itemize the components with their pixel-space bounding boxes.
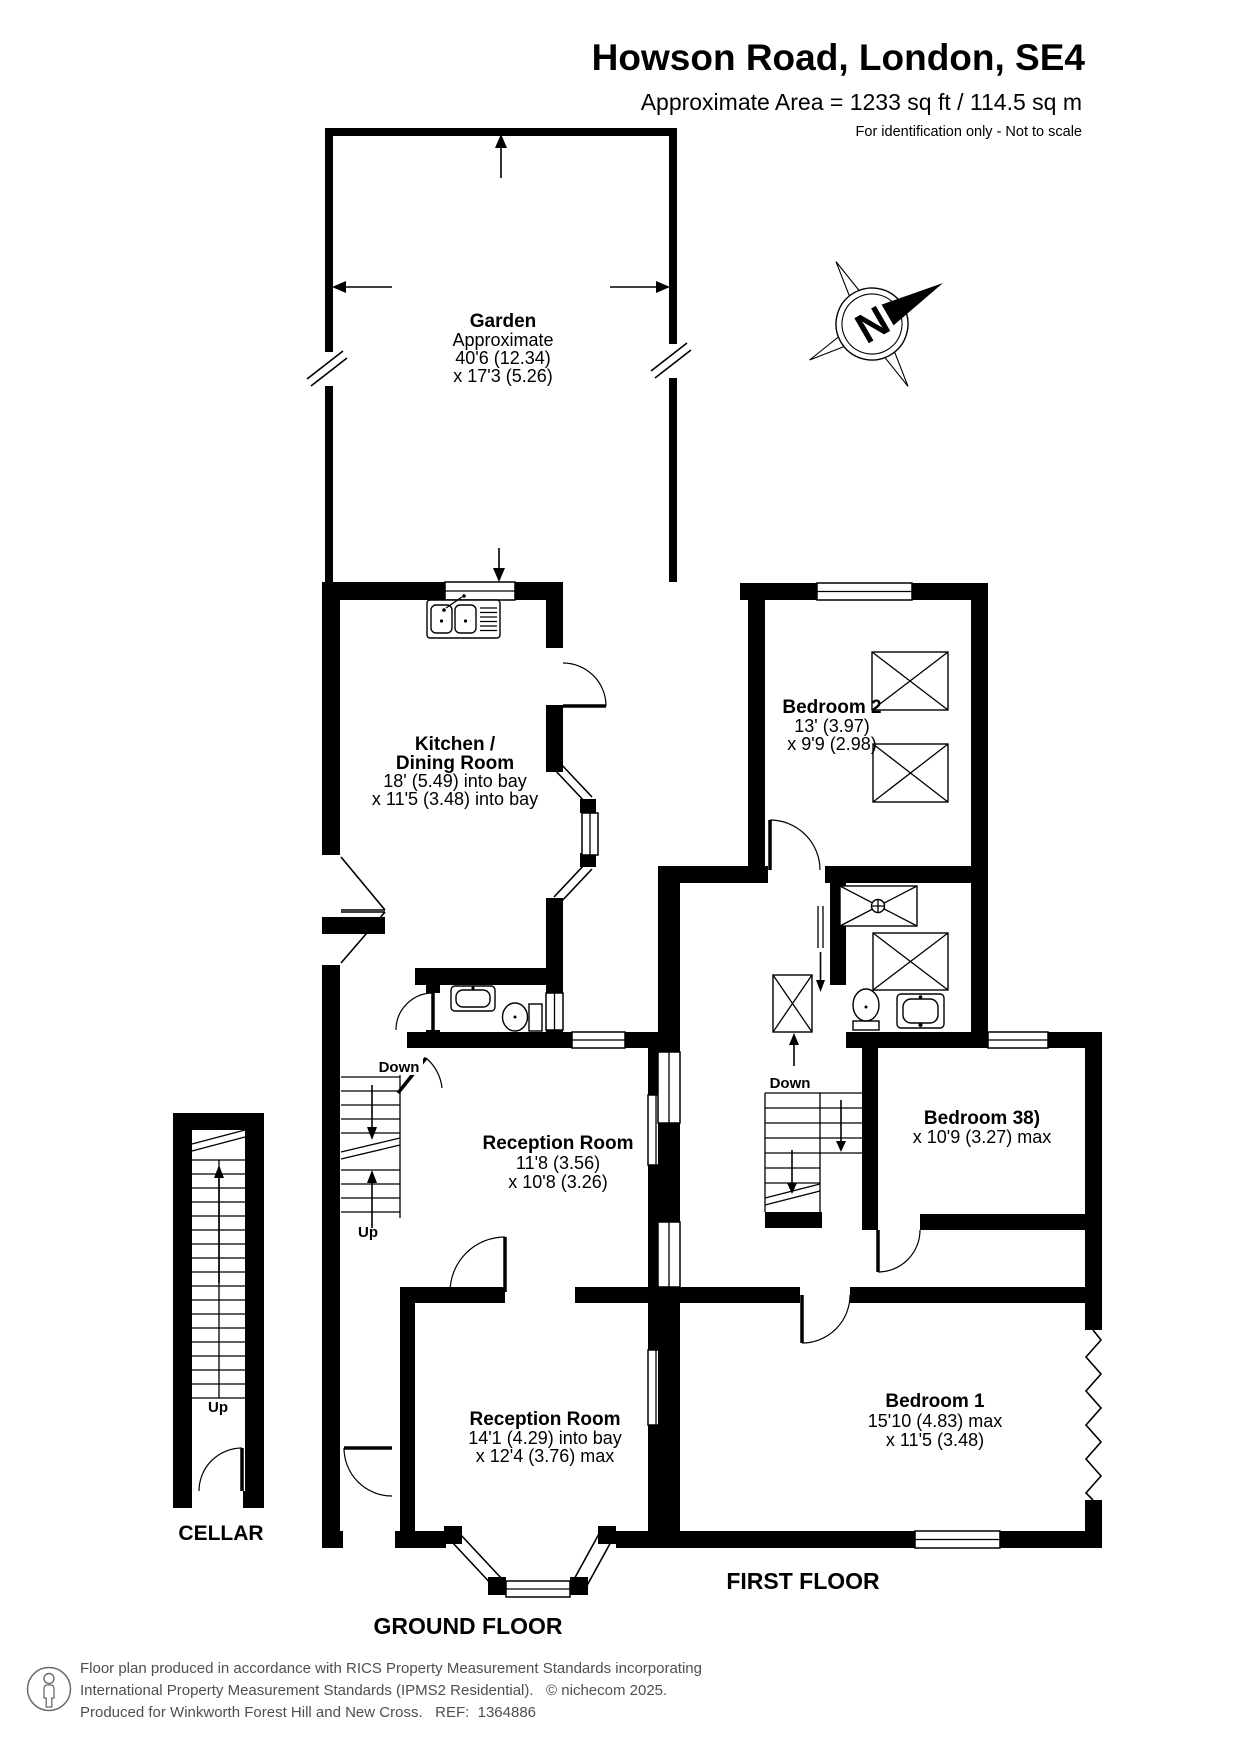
bedroom2-dim2: x 9'9 (2.98) [787,734,876,754]
ground-floor-stairs [341,1070,400,1228]
side-return-window-icon [572,1032,625,1048]
garden-name: Garden [470,311,537,332]
footer-line2: International Property Measurement Stand… [80,1682,667,1699]
garden-approx: Approximate [452,330,553,350]
kitchen-dim1: 18' (5.49) into bay [383,771,527,791]
ground-floor-title: GROUND FLOOR [373,1613,562,1639]
wc-basin-icon [451,986,495,1011]
bedroom1-dim1: 15'10 (4.83) max [868,1411,1003,1431]
front-reception-dim1: 14'1 (4.29) into bay [468,1428,622,1448]
bedroom1-label: Bedroom 1 15'10 (4.83) max x 11'5 (3.48) [868,1391,1003,1450]
gf-stairs-down-label: Down [379,1059,420,1076]
bedroom3-door-icon [878,1230,920,1272]
ff-stairs-down-label: Down [770,1075,811,1092]
front-reception-name: Reception Room [470,1409,621,1430]
gf-stairs-up-label: Up [358,1224,378,1241]
bathroom-cupboard-icon [873,933,948,990]
first-floor-title: FIRST FLOOR [726,1568,880,1594]
header-block: Howson Road, London, SE4 Approximate Are… [592,37,1086,140]
first-floor-walls [658,583,1102,1548]
north-arrow-icon: N [774,221,979,423]
bedroom1-dim2: x 11'5 (3.48) [886,1430,984,1450]
cellar-title: CELLAR [178,1522,263,1545]
disclaimer-text: For identification only - Not to scale [856,124,1082,140]
nichecom-logo-icon [28,1668,71,1711]
rear-reception-name: Reception Room [483,1133,634,1154]
front-reception-label: Reception Room 14'1 (4.29) into bay x 12… [468,1409,622,1466]
cellar-door-icon [199,1448,242,1491]
bedroom2-window-icon [817,583,912,600]
kitchen-french-doors-icon [341,857,385,963]
kitchen-name1: Kitchen / [415,734,496,755]
wc-toilet-icon [503,1003,543,1031]
footer-line3: Produced for Winkworth Forest Hill and N… [80,1704,536,1721]
first-floor-windows [658,583,1101,1548]
landing-side-window2-icon [658,1222,680,1287]
kitchen-rear-window-icon [445,582,515,600]
first-floor-stairs [765,1093,862,1212]
footer-block: Floor plan produced in accordance with R… [80,1660,702,1721]
bedroom1-window-icon [915,1531,1000,1548]
reception-divider-door-icon [450,1237,505,1292]
bedroom1-door-icon [802,1295,850,1343]
garden-dim2: x 17'3 (5.26) [453,366,553,386]
shower-icon [840,886,917,926]
kitchen-label: Kitchen / Dining Room 18' (5.49) into ba… [372,734,538,809]
cellar-stairs [192,1130,245,1398]
bedroom1-name: Bedroom 1 [885,1391,985,1412]
bedroom1-bay-zigzag [1086,1330,1101,1500]
rear-reception-dim2: x 10'8 (3.26) [508,1172,608,1192]
cellar-stairs-up-label: Up [208,1399,228,1416]
bedroom3-dim1: x 10'9 (3.27) max [913,1127,1052,1147]
kitchen-bay-window-icon [554,763,598,903]
wc-window-icon [546,993,563,1030]
bedroom3-label: Bedroom 38) x 10'9 (3.27) max [913,1108,1052,1147]
rear-reception-dim1: 11'8 (3.56) [516,1153,600,1173]
page-title: Howson Road, London, SE4 [592,37,1086,78]
rear-reception-label: Reception Room 11'8 (3.56) x 10'8 (3.26) [483,1133,634,1192]
floorplan-drawing: N [0,0,1241,1755]
bathroom-basin-icon [897,994,944,1028]
garden-label: Garden Approximate 40'6 (12.34) x 17'3 (… [452,311,553,386]
kitchen-side-door-icon [563,663,606,706]
bedroom3-window-icon [988,1032,1048,1048]
front-reception-dim2: x 12'4 (3.76) max [476,1446,615,1466]
bedroom3-name: Bedroom 38) [924,1108,1040,1129]
bedroom2-name: Bedroom 2 [782,697,881,718]
bedroom2-wardrobe2-icon [873,744,948,802]
bathroom-toilet-icon [853,989,879,1030]
garden-dim1: 40'6 (12.34) [455,348,551,368]
front-entrance-door-icon [344,1448,392,1496]
floorplan-page: N [0,0,1241,1755]
landing-side-window-icon [658,1052,680,1123]
kitchen-dim2: x 11'5 (3.48) into bay [372,789,538,809]
bathroom-door-icon [816,906,825,992]
footer-line1: Floor plan produced in accordance with R… [80,1660,702,1677]
wc-door-icon [396,993,433,1030]
landing-hatch-icon [773,975,812,1066]
bedroom2-label: Bedroom 2 13' (3.97) x 9'9 (2.98) [782,697,881,754]
bedroom2-wardrobe-icon [872,652,948,710]
bedroom2-door-icon [770,820,820,870]
area-text: Approximate Area = 1233 sq ft / 114.5 sq… [641,89,1082,115]
kitchen-sink-icon [427,594,500,638]
bedroom2-dim1: 13' (3.97) [794,716,869,736]
